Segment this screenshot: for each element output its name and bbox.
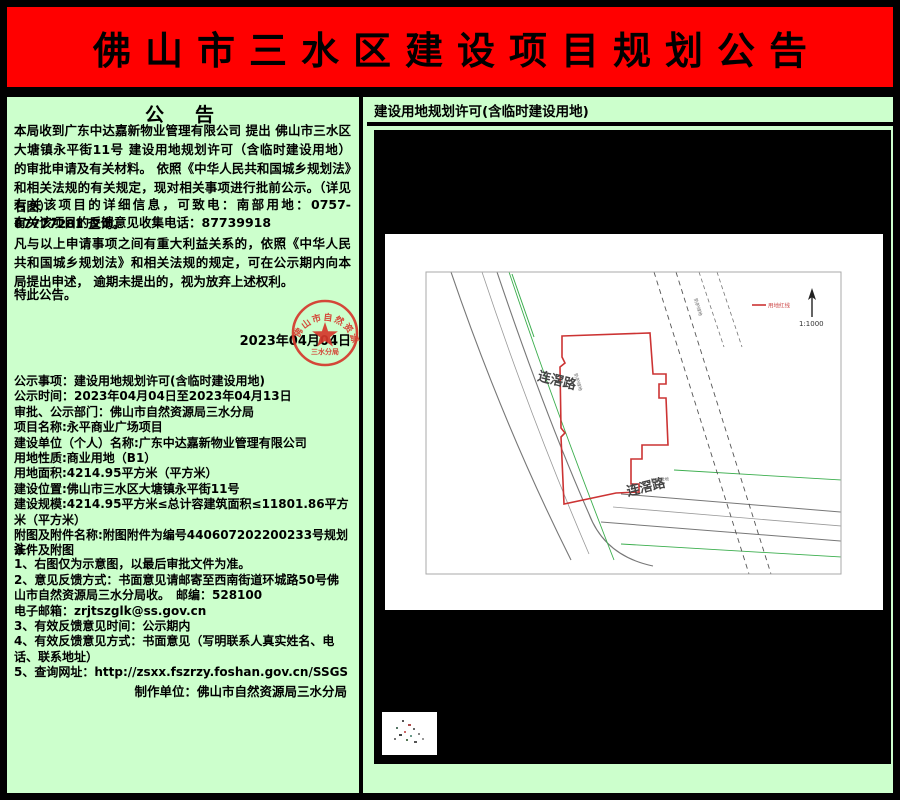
mini-map-thumbnail	[382, 712, 437, 755]
title-banner: 佛山市三水区建设项目规划公告	[7, 7, 893, 97]
note-line: 4、有效反馈意见方式：书面意见（写明联系人真实姓名、电话、联系地址）	[14, 634, 351, 665]
note-line: 注：	[14, 542, 351, 557]
announcement-page: 佛山市三水区建设项目规划公告 公 告 本局收到广东中达嘉新物业管理有限公司 提出…	[0, 0, 900, 800]
page-title: 佛山市三水区建设项目规划公告	[79, 20, 821, 75]
seal-star-icon	[312, 322, 338, 347]
map-scale: 1:1000	[799, 320, 824, 328]
detail-item: 公示时间：2023年04月04日至2023年04月13日	[14, 389, 351, 404]
detail-item: 公示事项：建设用地规划许可(含临时建设用地)	[14, 374, 351, 389]
notes-section: 注： 1、右图仅为示意图，以最后审批文件为准。 2、意见反馈方式：书面意见请邮寄…	[14, 542, 351, 681]
note-line: 2、意见反馈方式：书面意见请邮寄至西南街道环城路50号佛山市自然资源局三水分局收…	[14, 573, 351, 604]
plan-image: 连滘路 连滘路 防护绿地 防护绿地 防护绿地 用地红线	[374, 130, 891, 764]
note-line: 5、查询网址：http://zsxx.fszrzy.foshan.gov.cn/…	[14, 665, 351, 680]
detail-item: 项目名称:永平商业广场项目	[14, 420, 351, 435]
detail-item: 审批、公示部门：佛山市自然资源局三水分局	[14, 405, 351, 420]
permit-header: 建设用地规划许可(含临时建设用地)	[367, 97, 893, 126]
detail-item: 建设规模:4214.95平方米≤总计容建筑面积≤11801.86平方米（平方米）	[14, 497, 351, 528]
producer-line: 制作单位：佛山市自然资源局三水分局	[14, 681, 351, 700]
permit-panel: 建设用地规划许可(含临时建设用地)	[367, 97, 893, 793]
detail-item: 用地面积:4214.95平方米（平方米）	[14, 466, 351, 481]
seal-sub-text: 三水分局	[311, 347, 339, 356]
detail-item: 建设单位（个人）名称:广东中达嘉新物业管理有限公司	[14, 436, 351, 451]
notice-panel: 公 告 本局收到广东中达嘉新物业管理有限公司 提出 佛山市三水区大塘镇永平街11…	[7, 97, 363, 793]
notice-paragraph-4: 凡与以上申请事项之间有重大利益关系的，依照《中华人民共和国城乡规划法》和相关法规…	[14, 234, 351, 291]
official-seal: 佛山市自然资源局 三水分局	[288, 296, 362, 370]
map-frame	[426, 272, 841, 574]
site-plan-map: 连滘路 连滘路 防护绿地 防护绿地 防护绿地 用地红线	[385, 234, 883, 610]
legend-label: 用地红线	[768, 302, 791, 310]
detail-item: 用地性质:商业用地（B1）	[14, 451, 351, 466]
project-details: 公示事项：建设用地规划许可(含临时建设用地) 公示时间：2023年04月04日至…	[14, 374, 351, 559]
note-line: 3、有效反馈意见时间：公示期内	[14, 619, 351, 634]
note-line: 1、右图仅为示意图，以最后审批文件为准。	[14, 557, 351, 572]
notice-paragraph-3: 有关该项目的反馈意见收集电话：87739918	[14, 213, 351, 232]
detail-item: 建设位置:佛山市三水区大塘镇永平街11号	[14, 482, 351, 497]
note-line: 电子邮箱：zrjtszglk@ss.gov.cn	[14, 604, 351, 619]
